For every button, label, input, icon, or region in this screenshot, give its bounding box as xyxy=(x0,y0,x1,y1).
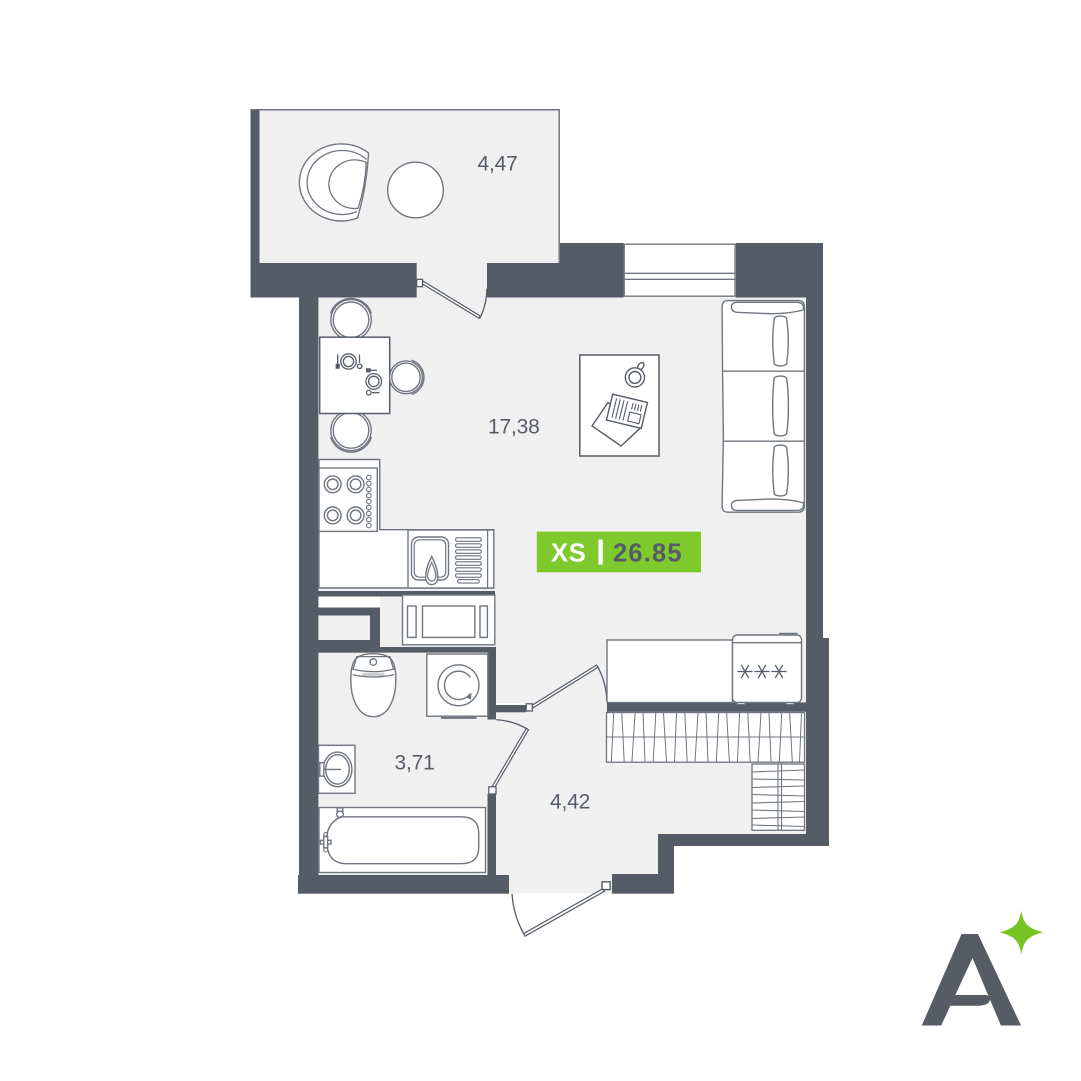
svg-text:17,38: 17,38 xyxy=(488,416,540,439)
svg-text:4,42: 4,42 xyxy=(550,790,590,813)
svg-text:XS: XS xyxy=(551,540,587,568)
svg-text:4,47: 4,47 xyxy=(478,153,518,176)
svg-text:3,71: 3,71 xyxy=(395,752,435,775)
svg-text:26.85: 26.85 xyxy=(613,539,683,567)
